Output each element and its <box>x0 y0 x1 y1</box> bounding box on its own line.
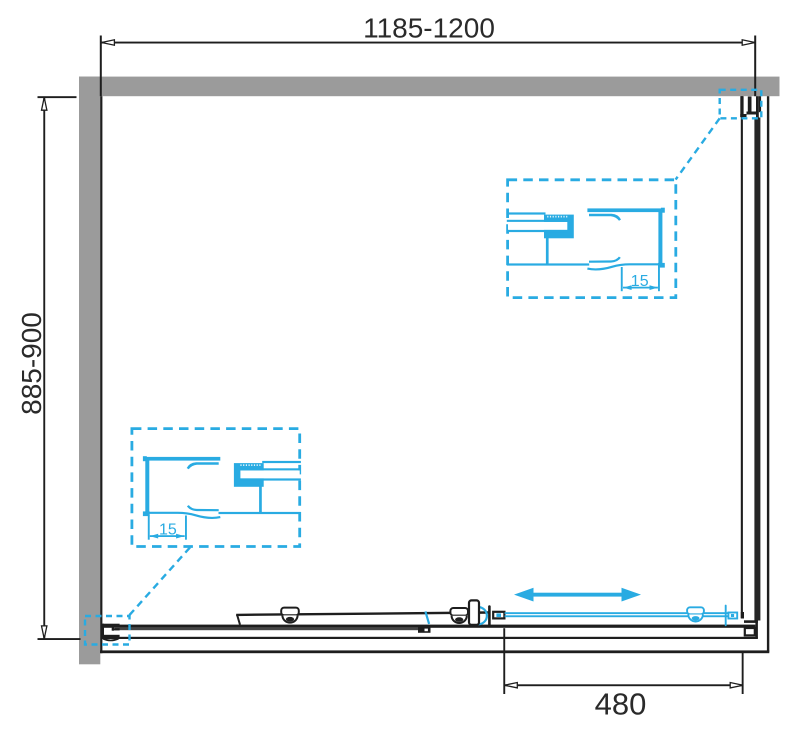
svg-text:480: 480 <box>595 687 647 722</box>
svg-text:15: 15 <box>631 273 649 290</box>
svg-text:1185-1200: 1185-1200 <box>363 12 495 43</box>
svg-text:15: 15 <box>159 521 177 538</box>
svg-text:885-900: 885-900 <box>16 312 47 415</box>
